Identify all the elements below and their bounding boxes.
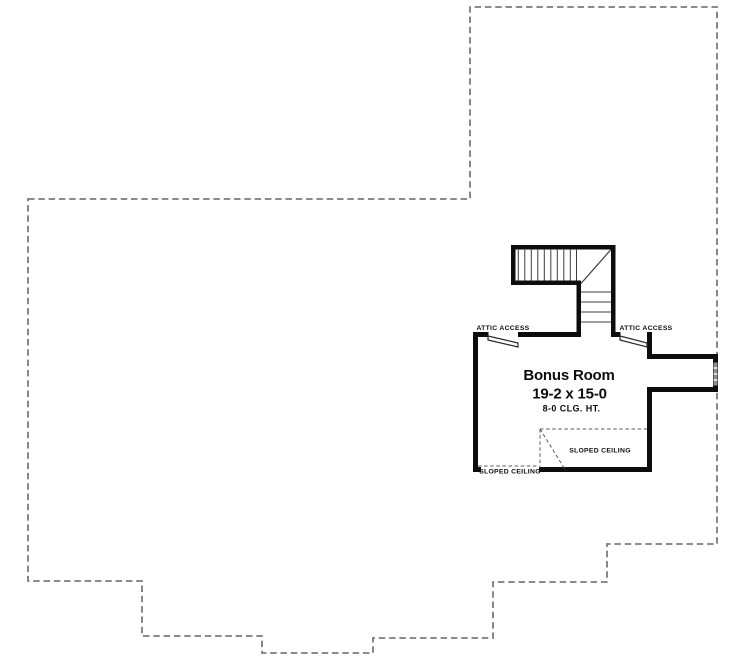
stair-run-bottom-wall [511, 281, 580, 286]
ceiling-height-label: 8-0 CLG. HT. [543, 404, 601, 414]
stair-treads-upper-run [518, 250, 576, 281]
stairwell-walls [511, 245, 616, 337]
stair-treads-lower-run [581, 292, 611, 322]
sloped-ceiling-bottom-label: SLOPED CEILING [479, 469, 541, 476]
top-wall-mid-segment [518, 332, 580, 337]
stair-left-wall [511, 245, 516, 285]
attic-access-left-leaf [488, 336, 518, 347]
stair-inner-wall [577, 281, 582, 338]
dormer-top-wall [647, 354, 718, 359]
stair-winder-diagonal [581, 250, 611, 284]
room-dimensions-label: 19-2 x 15-0 [532, 386, 607, 403]
floor-plan-drawing: ATTIC ACCESS ATTIC ACCESS Bonus Room 19-… [0, 0, 740, 664]
left-wall [473, 332, 478, 472]
stair-top-wall [511, 245, 615, 250]
top-wall-right-segment [611, 332, 621, 337]
right-lower-wall [647, 387, 652, 472]
dormer-bottom-wall [647, 387, 718, 392]
attic-access-left-label: ATTIC ACCESS [476, 325, 529, 332]
stair-right-wall [611, 245, 616, 337]
room-name-label: Bonus Room [523, 367, 614, 384]
attic-access-right-label: ATTIC ACCESS [619, 325, 672, 332]
floor-plan-canvas: ATTIC ACCESS ATTIC ACCESS Bonus Room 19-… [0, 0, 740, 664]
sloped-ceiling-center-label: SLOPED CEILING [569, 448, 631, 455]
attic-access-right-leaf [620, 336, 647, 347]
dormer-bump-out [647, 354, 718, 392]
